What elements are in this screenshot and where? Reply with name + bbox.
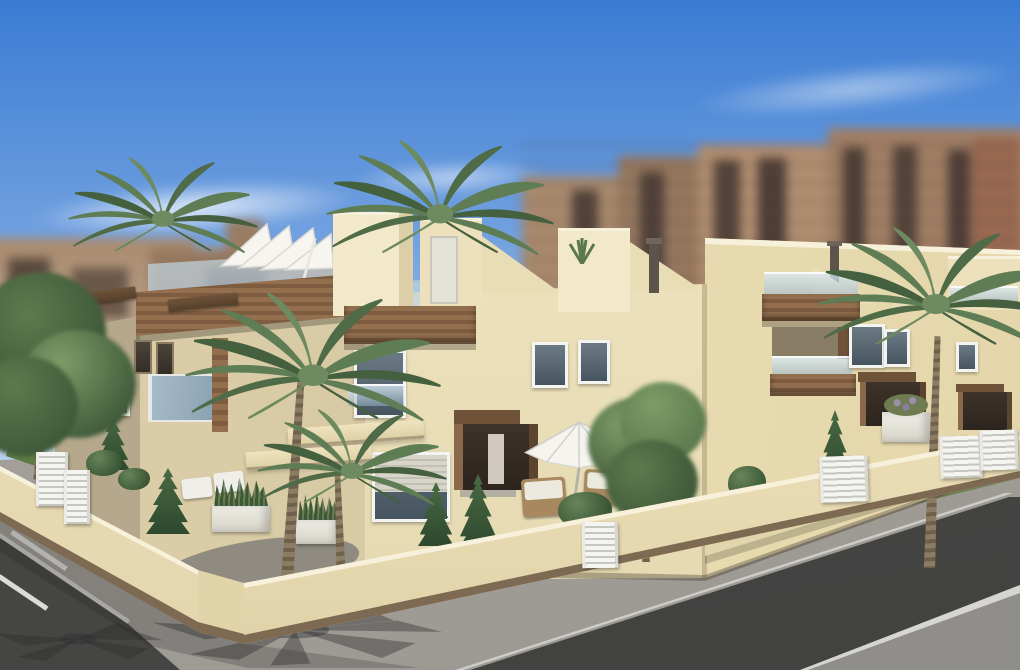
agave-plant <box>564 238 600 264</box>
palm-crown <box>252 406 452 510</box>
entrance-door <box>958 392 1012 430</box>
planter-box <box>882 412 930 442</box>
entrance-step <box>460 490 516 497</box>
entrance-recess <box>858 372 916 382</box>
palm-shadow <box>0 608 168 670</box>
slot-window <box>156 342 174 376</box>
balcony-canopy <box>770 374 856 396</box>
palm-crown <box>811 223 1020 353</box>
flower-planter-plant <box>884 394 928 416</box>
bush <box>86 450 122 476</box>
louver-fence <box>819 455 869 503</box>
garden-gate <box>582 522 619 569</box>
architectural-render-scene <box>0 0 1020 670</box>
door-leaf <box>488 434 504 484</box>
palm-crown <box>320 136 560 261</box>
sun-lounger <box>181 476 213 499</box>
chimney <box>649 241 659 293</box>
window <box>532 342 568 388</box>
entrance-recess <box>454 410 520 424</box>
window <box>578 340 610 384</box>
balcony-railing <box>772 356 852 376</box>
chimney-cap <box>646 238 662 244</box>
palm-crown <box>63 154 263 258</box>
entrance-recess <box>956 384 1004 392</box>
louver-fence <box>979 429 1018 470</box>
bush <box>118 468 150 490</box>
slot-window <box>134 340 152 374</box>
planter-box <box>296 518 340 544</box>
louver-fence <box>939 435 982 478</box>
louver-fence <box>64 470 90 524</box>
